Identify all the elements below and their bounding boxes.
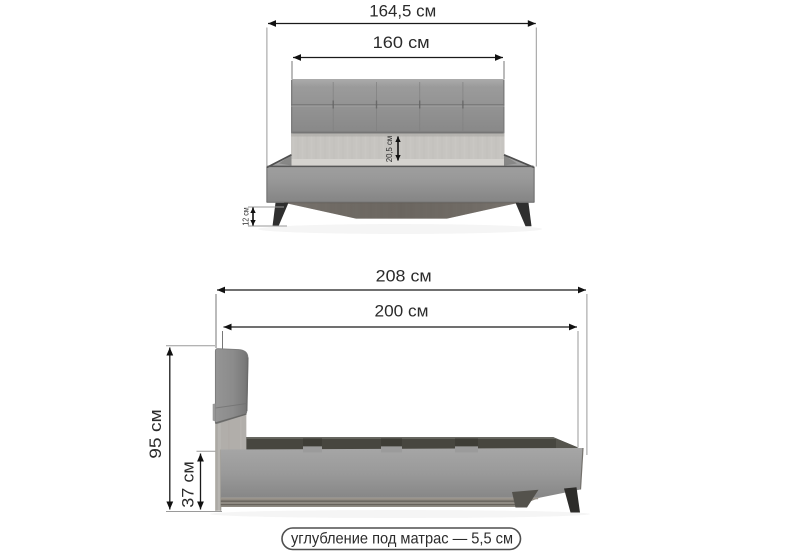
svg-text:37 см: 37 см xyxy=(179,461,198,508)
svg-text:160 см: 160 см xyxy=(373,33,430,52)
svg-text:200 см: 200 см xyxy=(375,302,429,321)
svg-text:20,5 см: 20,5 см xyxy=(385,136,394,163)
svg-text:12 см: 12 см xyxy=(240,207,250,226)
svg-text:208 см: 208 см xyxy=(376,267,432,286)
svg-text:164,5 см: 164,5 см xyxy=(369,2,436,21)
svg-text:углубление под матрас — 5,5 см: углубление под матрас — 5,5 см xyxy=(291,531,513,548)
svg-text:95 см: 95 см xyxy=(146,409,165,459)
